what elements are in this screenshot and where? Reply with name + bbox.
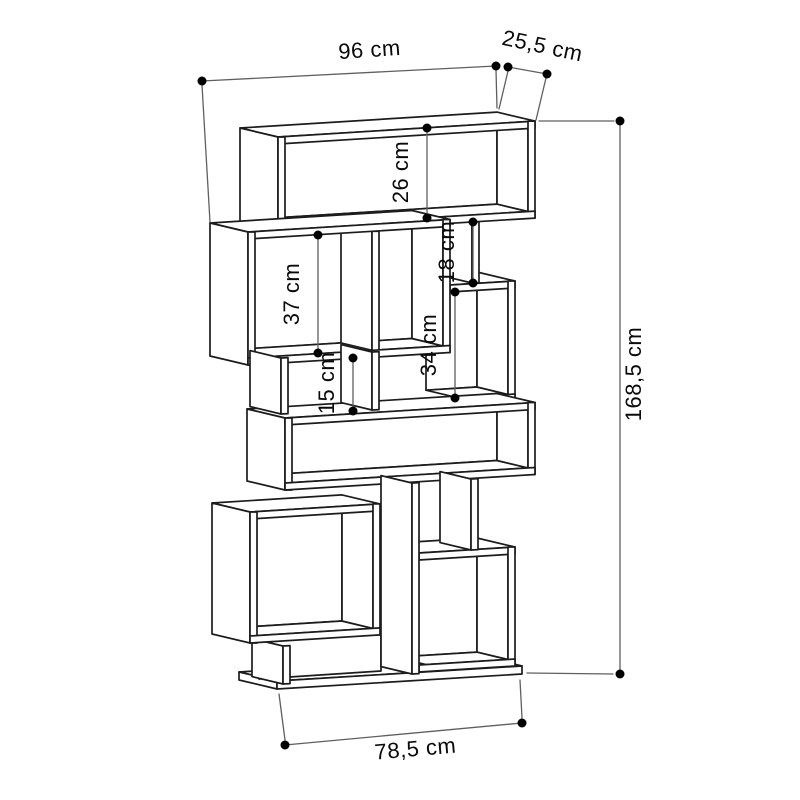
dim-label-top-compartment: 26 cm [388,141,413,203]
panel-face [212,503,250,643]
panel-face [341,345,372,410]
dim-marker [423,214,432,223]
dim-marker [281,741,290,750]
panel-face [247,409,285,490]
panel-face [412,483,419,674]
dim-marker [543,70,552,79]
dim-base-width-78-5: 78,5 cm [279,680,527,765]
panel-face [341,224,372,350]
canvas: { "colors": { "background": "#ffffff", "… [0,0,800,800]
dim-marker [349,407,358,416]
panel-face [528,121,535,218]
dim-total-height-168-5: 168,5 cm [527,117,646,679]
panel-face [508,547,515,666]
dim-marker [451,288,460,297]
panel-face [477,547,508,659]
dim-marker [314,231,323,240]
dim-marker [616,117,625,126]
dim-label-base-width: 78,5 cm [374,733,458,765]
panel-face [477,281,508,394]
panel-face [471,479,478,550]
dim-depth-25-5: 25,5 cm [499,25,585,120]
dim-label-upper-right-compartment: 18 cm [434,221,459,283]
panel-face [373,504,380,635]
panel-face [440,472,471,550]
panel-face [281,358,288,414]
dim-marker [423,124,432,133]
bookcase-technical-drawing: 96 cm 25,5 cm 26 cm 37 cm 18 cm 34 cm [0,0,800,800]
dim-marker [469,279,478,288]
panel-face [372,352,379,410]
dim-label-total-height: 168,5 cm [621,327,646,422]
dim-label-width: 96 cm [337,35,401,64]
panel-face [240,128,278,234]
dim-marker [492,62,501,71]
dim-marker [504,63,513,72]
panel-face [250,512,257,643]
panel-face [528,403,535,475]
dim-label-left-compartment: 37 cm [279,263,304,325]
panel-face [285,418,292,490]
panel-face [248,232,255,365]
dim-marker [469,218,478,227]
dim-marker [616,670,625,679]
dim-marker [198,77,207,86]
panel-face [381,476,412,674]
bookcase-line-art [210,112,535,689]
panel-face [252,639,283,684]
panel-face [372,231,379,350]
panel-face [210,223,248,365]
dim-label-small-compartment: 15 cm [314,352,339,414]
panel-face [342,504,373,628]
dim-label-depth: 25,5 cm [500,25,585,66]
panel-face [250,351,281,414]
panel-face [508,281,515,401]
dim-marker [349,354,358,363]
dim-label-middle-right-compartment: 34 cm [416,314,441,376]
panel-face [283,646,290,684]
dim-marker [451,394,460,403]
panel-face [497,121,528,211]
dim-marker [518,719,527,728]
